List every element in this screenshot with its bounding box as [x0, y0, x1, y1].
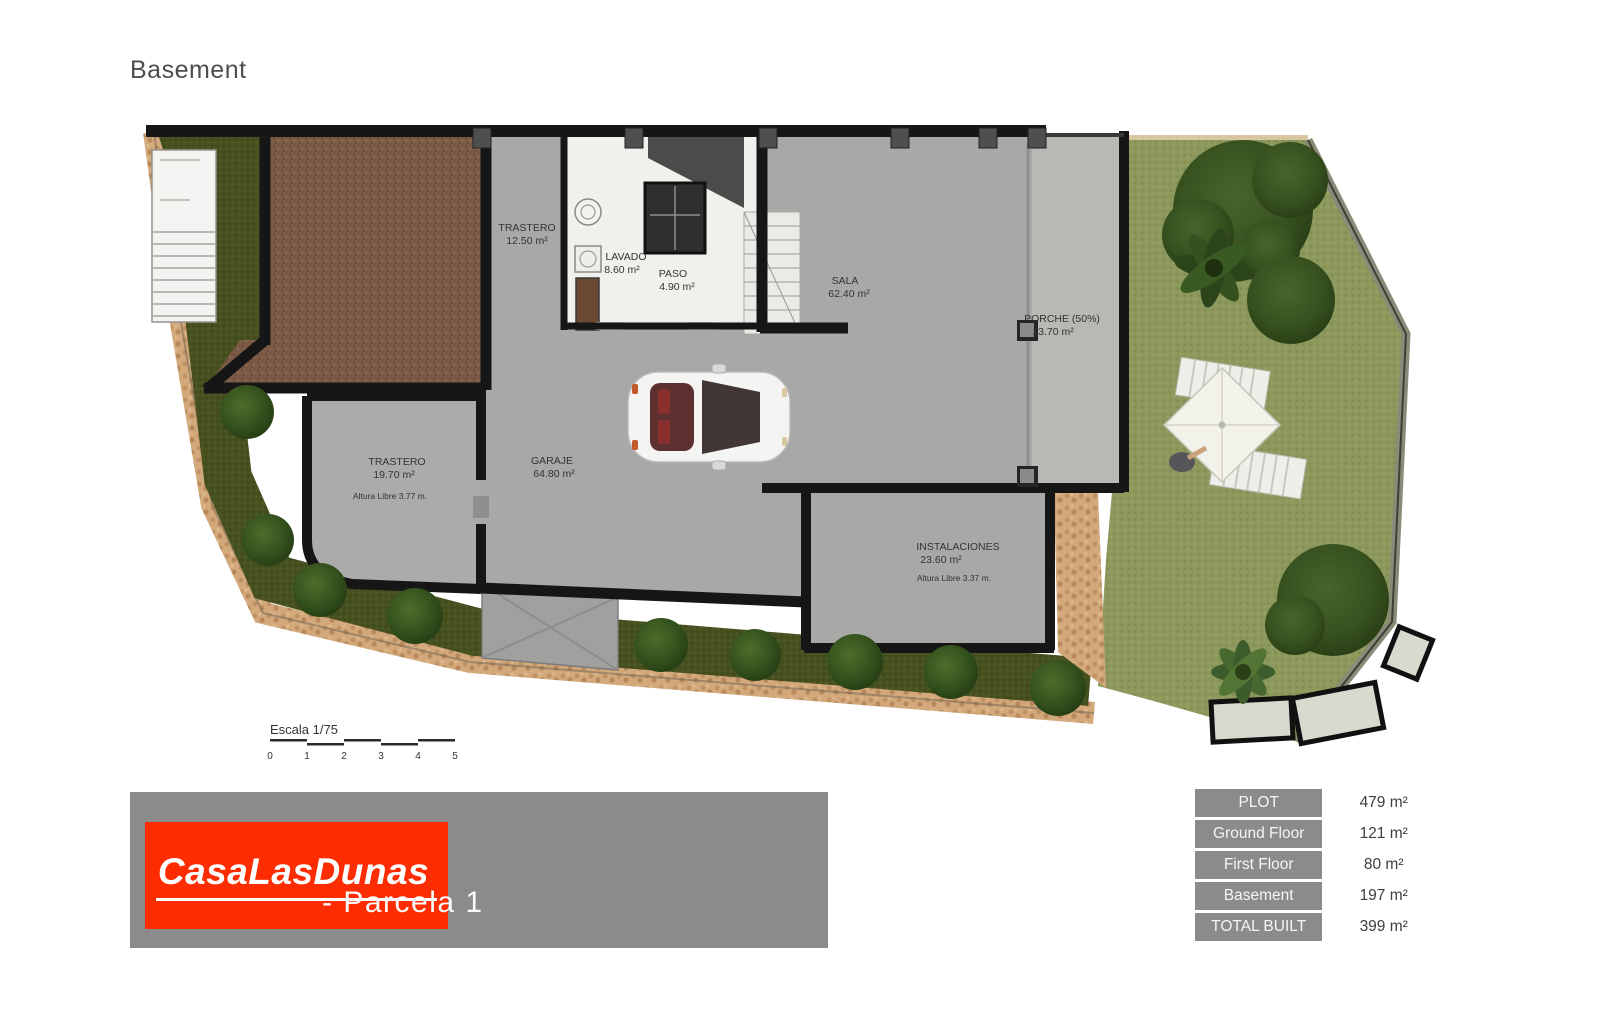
- footer-banner: CasaLasDunas: [130, 792, 828, 948]
- scale-tick: 2: [341, 751, 347, 762]
- row-label: TOTAL BUILT: [1195, 913, 1322, 941]
- room-area-garaje: 64.80 m²: [533, 468, 575, 480]
- row-value: 121 m²: [1325, 820, 1442, 848]
- row-value: 399 m²: [1325, 913, 1442, 941]
- scale-label: Escala 1/75: [270, 722, 338, 737]
- room-label-porche: PORCHE (50%): [1024, 313, 1100, 325]
- page: Basement: [0, 0, 1600, 1024]
- room-label-lavado: LAVADO: [605, 251, 646, 263]
- scale-bar: Escala 1/75 0 1 2 3 4 5: [267, 722, 458, 762]
- room-label-instalaciones: INSTALACIONES: [916, 541, 999, 553]
- room-label-trastero12: TRASTERO: [498, 222, 555, 234]
- scale-tick: 4: [415, 751, 421, 762]
- room-label-paso: PASO: [659, 268, 687, 280]
- room-area-paso: 4.90 m²: [659, 281, 695, 293]
- room-area-porche: 13.70 m²: [1032, 326, 1074, 338]
- summary-table: PLOT 479 m² Ground Floor 121 m² First Fl…: [1192, 786, 1445, 944]
- room-label-garaje: GARAJE: [531, 455, 573, 467]
- palm-bush-bottom: [1211, 640, 1275, 704]
- plot-subtitle: - Parcela 1: [322, 886, 484, 920]
- table-row: TOTAL BUILT 399 m²: [1195, 913, 1442, 941]
- row-label: Basement: [1195, 882, 1322, 910]
- room-area-sala: 62.40 m²: [828, 288, 870, 300]
- table-row: PLOT 479 m²: [1195, 789, 1442, 817]
- row-label: Ground Floor: [1195, 820, 1322, 848]
- car: [628, 364, 790, 470]
- row-label: PLOT: [1195, 789, 1322, 817]
- scale-tick: 5: [452, 751, 458, 762]
- row-value: 479 m²: [1325, 789, 1442, 817]
- room-label-trastero19: TRASTERO: [368, 456, 425, 468]
- row-label: First Floor: [1195, 851, 1322, 879]
- room-label-sala: SALA: [832, 275, 859, 287]
- laundry-fixtures: [575, 199, 601, 330]
- tree-small: [1247, 256, 1335, 344]
- door-marker: [473, 496, 489, 518]
- row-value: 80 m²: [1325, 851, 1442, 879]
- porch-floor: [1032, 136, 1124, 486]
- table-row: Basement 197 m²: [1195, 882, 1442, 910]
- room-area-trastero19: 19.70 m²: [373, 469, 415, 481]
- room-note-instalaciones: Altura Libre 3.37 m.: [917, 573, 991, 583]
- exterior-stairs: [152, 150, 216, 322]
- table-row: Ground Floor 121 m²: [1195, 820, 1442, 848]
- room-area-lavado: 8.60 m²: [604, 264, 640, 276]
- scale-tick: 0: [267, 751, 273, 762]
- scale-tick: 1: [304, 751, 310, 762]
- paso-stairs: [744, 212, 800, 334]
- row-value: 197 m²: [1325, 882, 1442, 910]
- room-area-trastero12: 12.50 m²: [506, 235, 548, 247]
- table-row: First Floor 80 m²: [1195, 851, 1442, 879]
- room-note-trastero19: Altura Libre 3.77 m.: [353, 491, 427, 501]
- room-area-instalaciones: 23.60 m²: [920, 554, 962, 566]
- scale-tick: 3: [378, 751, 384, 762]
